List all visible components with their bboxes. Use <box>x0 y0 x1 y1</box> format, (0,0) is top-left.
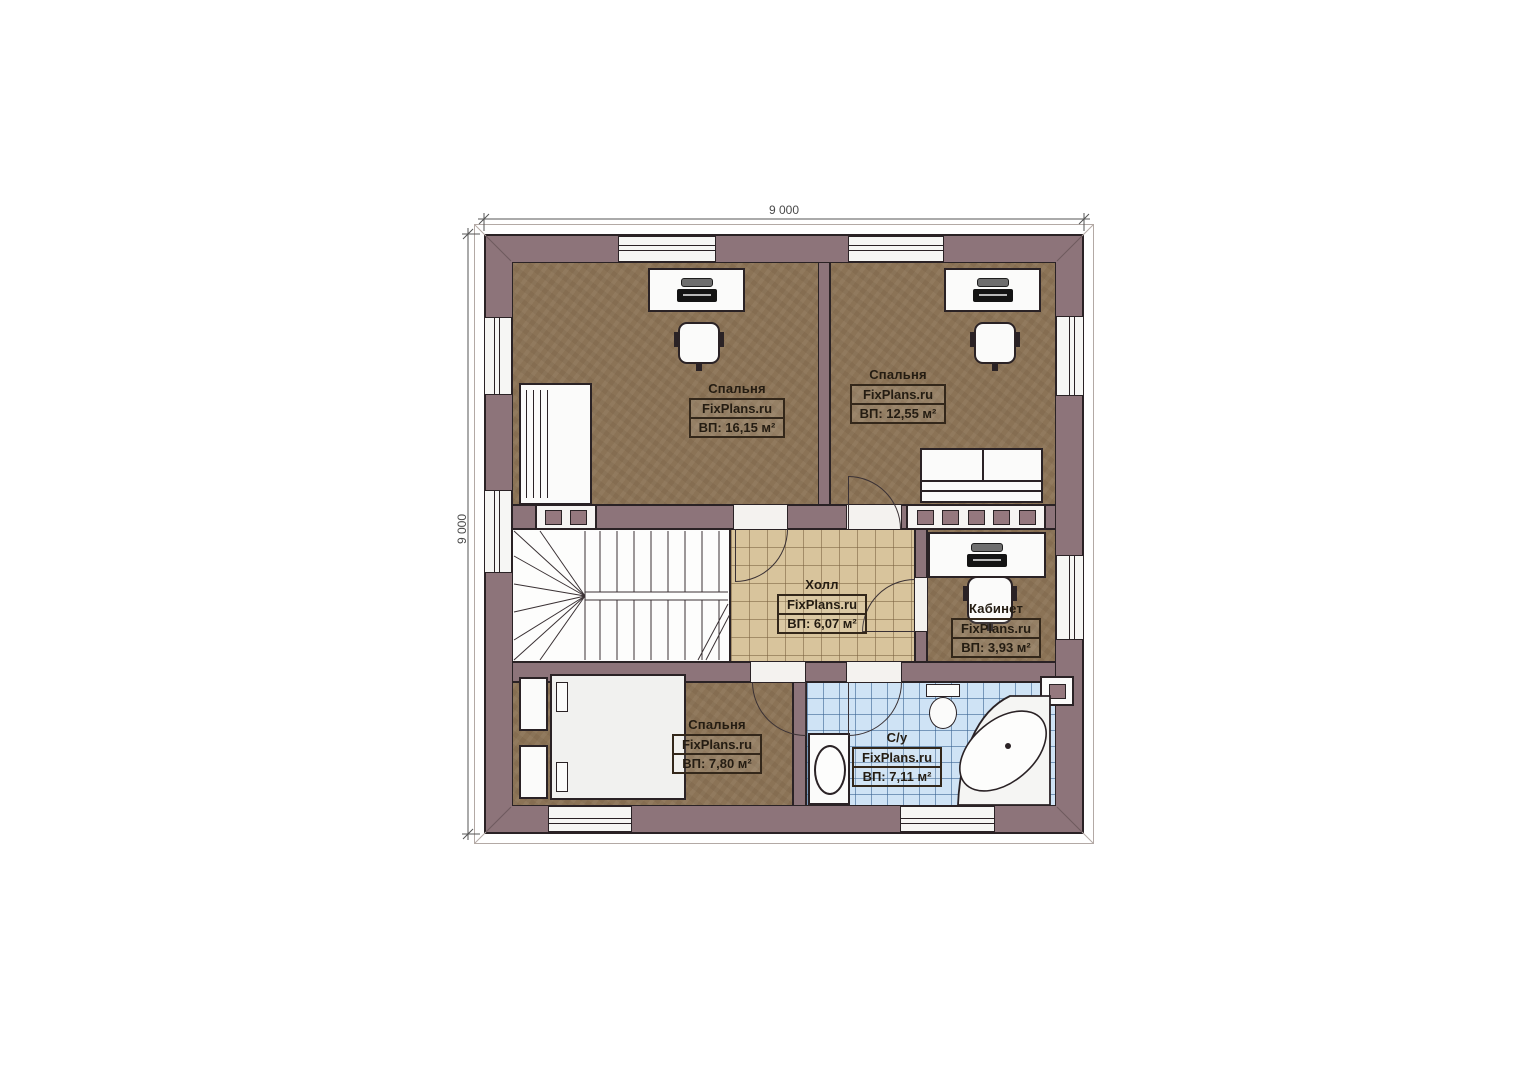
room-info-box: FixPlans.ru ВП: 12,55 м² <box>850 384 947 424</box>
sofa-cushion-divider <box>982 450 984 480</box>
room-name: Спальня <box>708 381 766 396</box>
doorway-bathroom <box>846 662 902 682</box>
brand-watermark: FixPlans.ru <box>953 620 1039 637</box>
room-area: ВП: 7,11 м² <box>854 766 940 785</box>
brand-watermark: FixPlans.ru <box>779 596 865 613</box>
window-top-1 <box>618 236 716 262</box>
vent-duct <box>1049 684 1066 699</box>
brand-watermark: FixPlans.ru <box>691 400 784 417</box>
closet-stairs <box>535 504 597 530</box>
closet-office <box>906 504 1046 530</box>
room-label-bedroom-1: Спальня FixPlans.ru ВП: 16,15 м² <box>672 381 802 438</box>
room-area: ВП: 7,80 м² <box>674 753 760 772</box>
sofa-seat-line <box>922 480 1041 482</box>
floor-plan-page: { "plan": { "dimensions": { "width": "9 … <box>0 0 1528 1080</box>
room-area: ВП: 3,93 м² <box>953 637 1039 656</box>
window-right-1 <box>1056 316 1084 396</box>
doorway-bedroom-1 <box>733 505 788 529</box>
wardrobe-rail <box>526 390 552 498</box>
doorway-bedroom-3 <box>750 662 806 682</box>
window-top-2 <box>848 236 944 262</box>
brand-watermark: FixPlans.ru <box>852 386 945 403</box>
toilet-tank <box>926 684 960 697</box>
pillow-1 <box>556 682 568 712</box>
brand-watermark: FixPlans.ru <box>674 736 760 753</box>
wardrobe-bedroom-1 <box>519 383 592 505</box>
laptop-icon <box>677 289 717 302</box>
room-name: Холл <box>805 577 838 592</box>
dimension-height-label: 9 000 <box>455 499 469 559</box>
brand-watermark: FixPlans.ru <box>854 749 940 766</box>
room-info-box: FixPlans.ru ВП: 16,15 м² <box>689 398 786 438</box>
room-info-box: FixPlans.ru ВП: 6,07 м² <box>777 594 867 634</box>
room-area: ВП: 16,15 м² <box>691 417 784 436</box>
desk-bedroom-2 <box>944 268 1041 312</box>
stairwell-area <box>512 529 730 662</box>
dimension-width-label: 9 000 <box>754 203 814 217</box>
doorway-office <box>915 577 927 632</box>
wall-between-bedrooms <box>818 262 830 505</box>
window-left-1 <box>484 317 512 395</box>
laptop-icon <box>967 554 1007 567</box>
toilet-bowl <box>929 697 957 729</box>
chair-bedroom-2 <box>974 322 1016 364</box>
room-area: ВП: 12,55 м² <box>852 403 945 422</box>
room-info-box: FixPlans.ru ВП: 7,11 м² <box>852 747 942 787</box>
room-info-box: FixPlans.ru ВП: 3,93 м² <box>951 618 1041 658</box>
room-label-hall: Холл FixPlans.ru ВП: 6,07 м² <box>757 577 887 634</box>
room-label-bathroom: С/у FixPlans.ru ВП: 7,11 м² <box>832 730 962 787</box>
laptop-icon <box>973 289 1013 302</box>
room-name: Кабинет <box>969 601 1023 616</box>
room-label-bedroom-2: Спальня FixPlans.ru ВП: 12,55 м² <box>833 367 963 424</box>
room-name: С/у <box>887 730 908 745</box>
room-label-bedroom-3: Спальня FixPlans.ru ВП: 7,80 м² <box>652 717 782 774</box>
nightstand-2 <box>519 745 548 799</box>
desk-bedroom-1 <box>648 268 745 312</box>
desk-office <box>928 532 1046 578</box>
desk-lamp-icon <box>681 278 713 287</box>
ventilation-shaft <box>1040 676 1074 706</box>
window-left-2 <box>484 490 512 573</box>
nightstand-1 <box>519 677 548 731</box>
room-name: Спальня <box>688 717 746 732</box>
room-area: ВП: 6,07 м² <box>779 613 865 632</box>
window-bottom-2 <box>900 806 995 832</box>
window-bottom-1 <box>548 806 632 832</box>
desk-lamp-icon <box>971 543 1003 552</box>
sofa-bed <box>920 448 1043 503</box>
desk-lamp-icon <box>977 278 1009 287</box>
room-label-office: Кабинет FixPlans.ru ВП: 3,93 м² <box>931 601 1061 658</box>
room-info-box: FixPlans.ru ВП: 7,80 м² <box>672 734 762 774</box>
room-name: Спальня <box>869 367 927 382</box>
sofa-slat-line <box>922 490 1041 492</box>
chair-bedroom-1 <box>678 322 720 364</box>
pillow-2 <box>556 762 568 792</box>
